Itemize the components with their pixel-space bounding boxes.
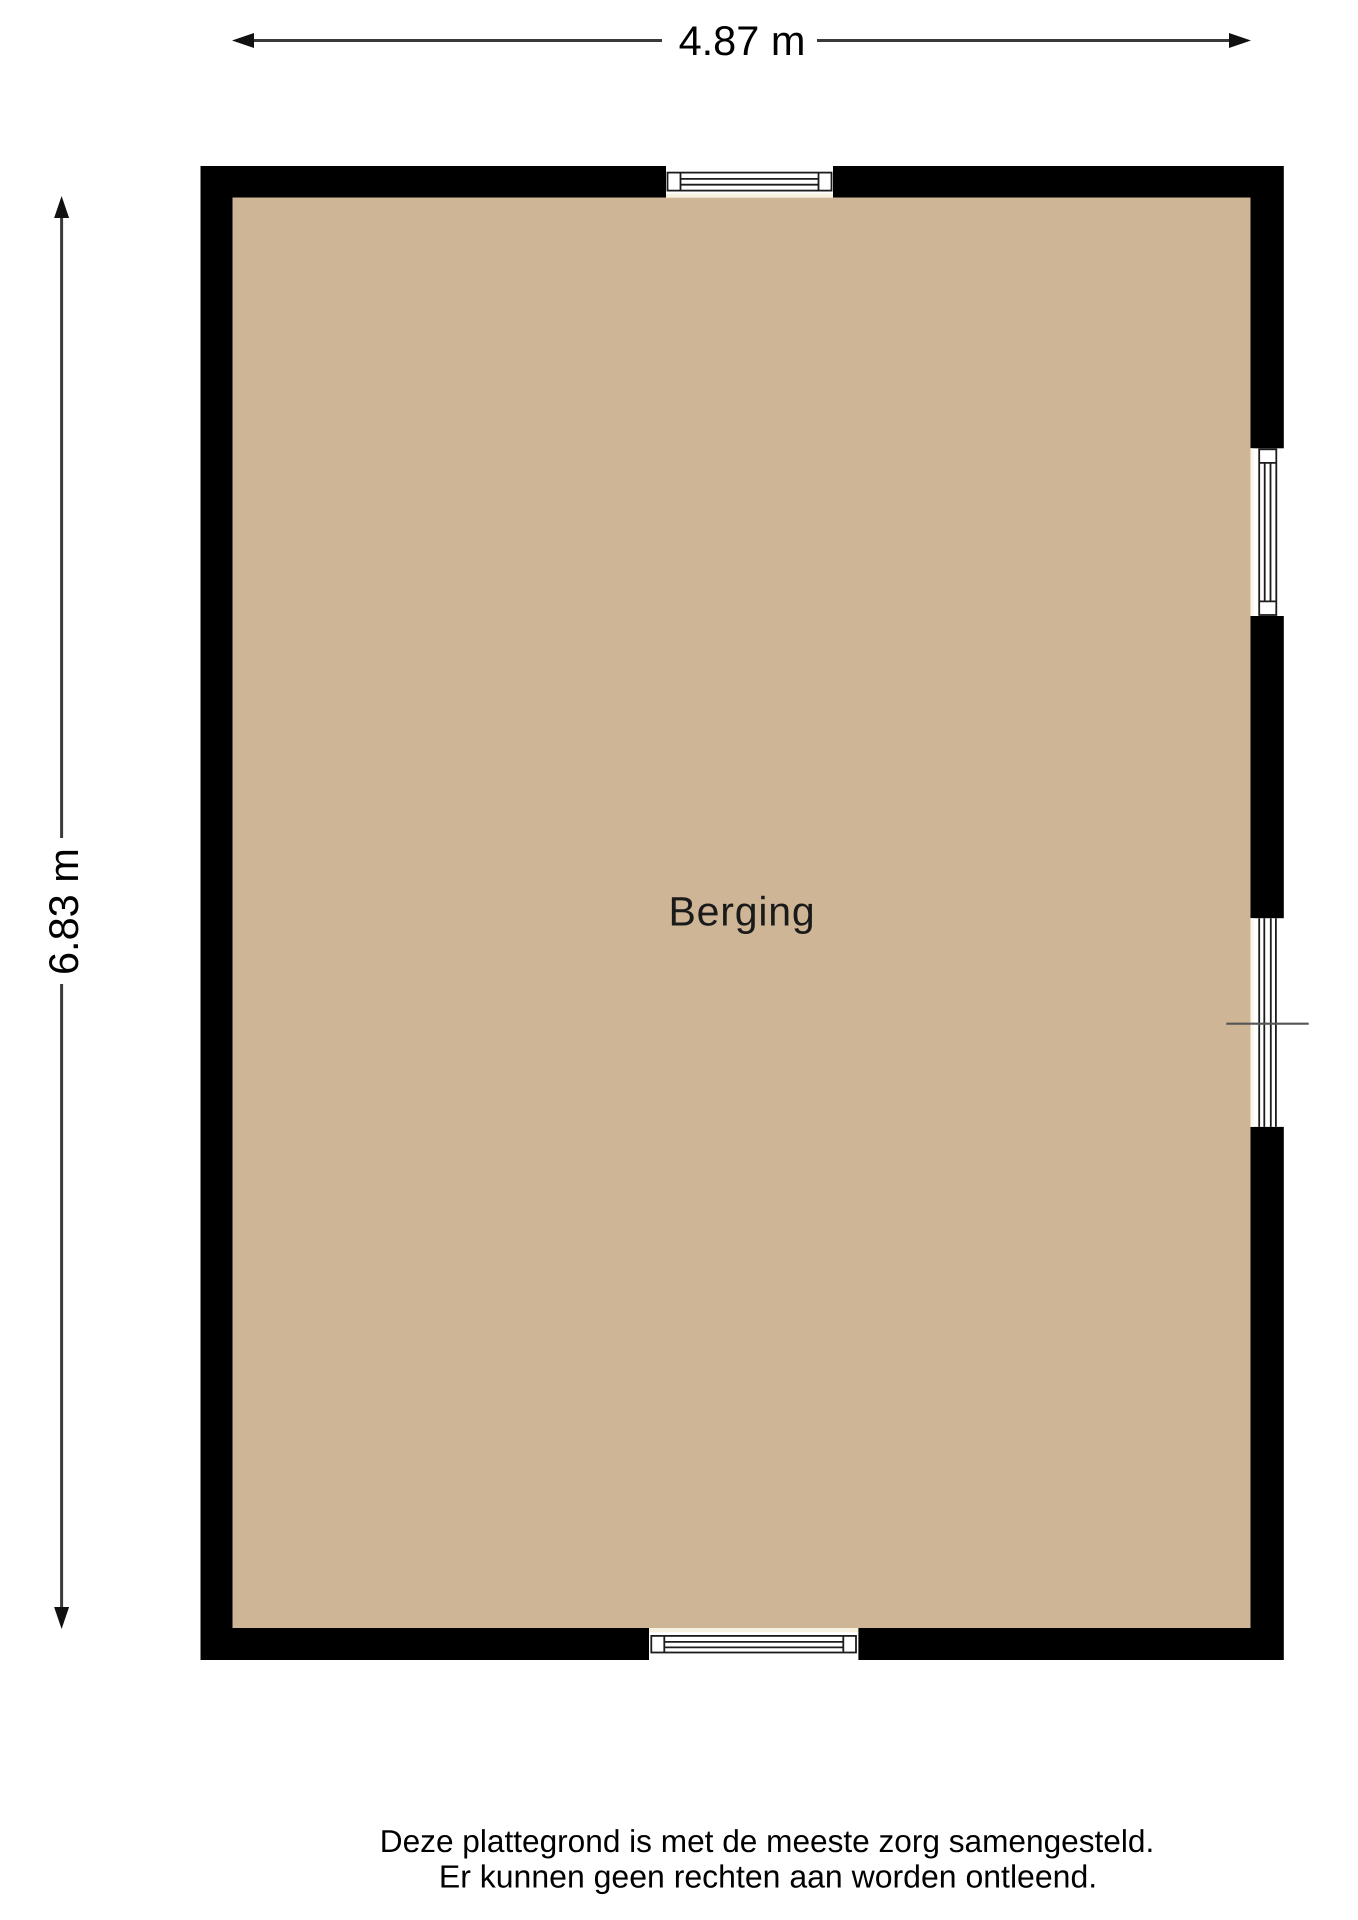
- svg-text:Deze plattegrond is met de mee: Deze plattegrond is met de meeste zorg s…: [380, 1823, 1154, 1859]
- svg-text:Berging: Berging: [669, 889, 816, 935]
- svg-text:Er kunnen geen rechten aan wor: Er kunnen geen rechten aan worden ontlee…: [439, 1859, 1097, 1895]
- svg-text:6.83 m: 6.83 m: [40, 848, 87, 975]
- svg-text:4.87 m: 4.87 m: [679, 17, 806, 64]
